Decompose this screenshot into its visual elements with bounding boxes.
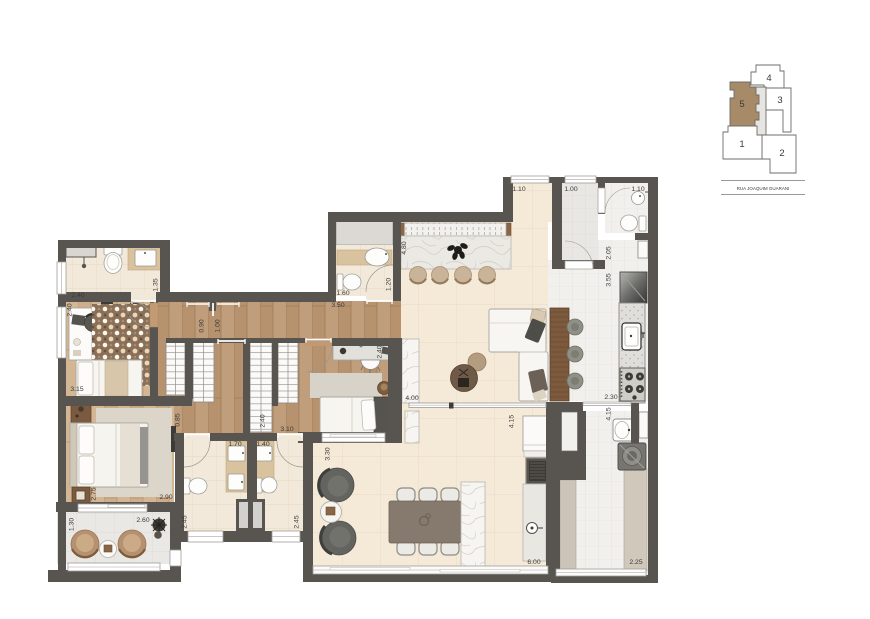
svg-text:1.60: 1.60	[336, 290, 349, 297]
svg-text:3.15: 3.15	[70, 386, 83, 393]
svg-text:2.60: 2.60	[136, 517, 149, 524]
svg-text:0.85: 0.85	[175, 413, 182, 426]
svg-text:3.10: 3.10	[280, 426, 293, 433]
svg-text:1.00: 1.00	[564, 186, 577, 193]
svg-text:4: 4	[766, 73, 771, 84]
svg-text:3.30: 3.30	[325, 447, 332, 460]
svg-text:2.75: 2.75	[91, 487, 98, 500]
svg-text:2: 2	[779, 148, 784, 159]
svg-text:4.15: 4.15	[509, 415, 516, 428]
svg-text:2.25: 2.25	[629, 559, 642, 566]
svg-text:1.20: 1.20	[386, 278, 393, 291]
svg-text:3.50: 3.50	[331, 302, 344, 309]
svg-text:5: 5	[739, 99, 744, 110]
svg-text:1: 1	[739, 139, 744, 150]
svg-text:RUA JOAQUIM GUARANI: RUA JOAQUIM GUARANI	[737, 186, 790, 191]
svg-text:1.70: 1.70	[228, 441, 241, 448]
svg-text:1.40: 1.40	[256, 441, 269, 448]
svg-text:0.90: 0.90	[199, 319, 206, 332]
svg-text:1.10: 1.10	[512, 186, 525, 193]
svg-text:1.35: 1.35	[153, 278, 160, 291]
svg-text:4.80: 4.80	[401, 241, 408, 254]
svg-text:1.10: 1.10	[631, 186, 644, 193]
svg-text:2.45: 2.45	[182, 515, 189, 528]
svg-text:6.00: 6.00	[527, 559, 540, 566]
svg-text:1.00: 1.00	[215, 319, 222, 332]
svg-text:2.30: 2.30	[604, 394, 617, 401]
svg-text:4.00: 4.00	[405, 395, 418, 402]
svg-text:2.45: 2.45	[294, 515, 301, 528]
svg-text:1.30: 1.30	[69, 518, 76, 531]
svg-text:3.55: 3.55	[606, 273, 613, 286]
svg-text:2.90: 2.90	[159, 494, 172, 501]
svg-text:2.40: 2.40	[71, 292, 84, 299]
svg-text:2.40: 2.40	[377, 345, 384, 358]
svg-text:2.40: 2.40	[67, 303, 74, 316]
svg-text:2.05: 2.05	[606, 246, 613, 259]
svg-text:4.15: 4.15	[606, 407, 613, 420]
svg-text:3: 3	[777, 95, 782, 106]
svg-text:2.40: 2.40	[260, 414, 267, 427]
